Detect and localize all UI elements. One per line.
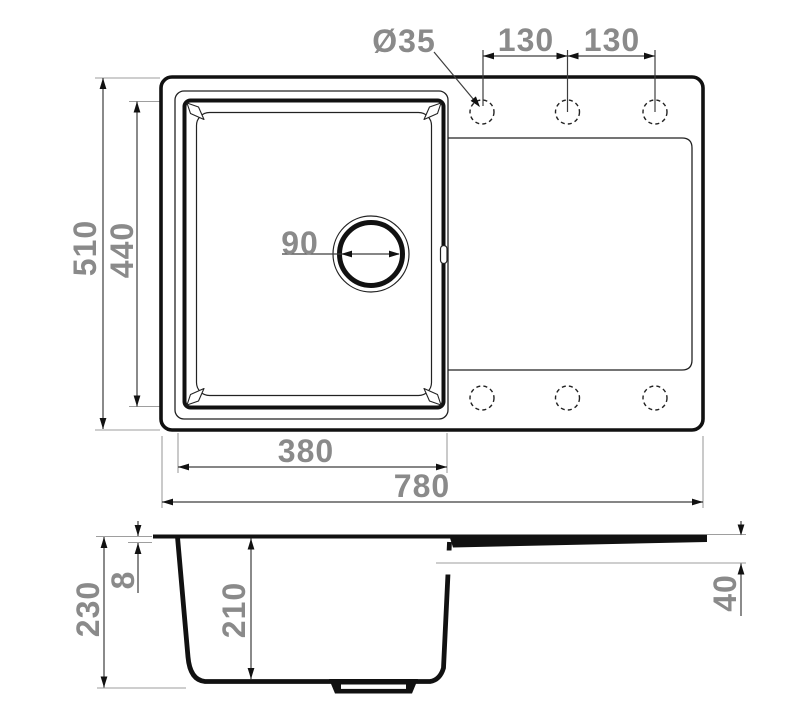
dim-label-drainboard-height: 40 (709, 574, 741, 612)
dim-label-hole-spacing-1: 130 (498, 24, 554, 56)
dim-label-hole-spacing-2: 130 (584, 24, 640, 56)
dim-label-section-bowl-depth: 210 (218, 582, 250, 638)
section-drain-flange (341, 685, 406, 689)
dim-label-bowl-width: 380 (278, 435, 334, 467)
dim-label-overall-width: 780 (394, 470, 450, 502)
drawing-linework (0, 0, 785, 714)
section-extension-lines (96, 535, 746, 689)
dim-label-rim-thickness: 8 (107, 571, 139, 590)
overflow-slot (441, 246, 448, 264)
section-view (96, 521, 746, 694)
dim-label-drain-diameter: 90 (281, 227, 319, 259)
section-arrows (101, 525, 745, 688)
section-dimension-lines (104, 521, 741, 688)
dim-label-overall-depth: 510 (69, 220, 101, 276)
sink-technical-drawing: Ø35 130 130 510 440 90 380 780 230 8 210… (0, 0, 785, 714)
dim-label-faucet-hole-diameter: Ø35 (372, 25, 435, 57)
top-view (95, 50, 703, 508)
dim-label-overall-height: 230 (72, 581, 104, 637)
dim-label-bowl-depth: 440 (106, 222, 138, 278)
